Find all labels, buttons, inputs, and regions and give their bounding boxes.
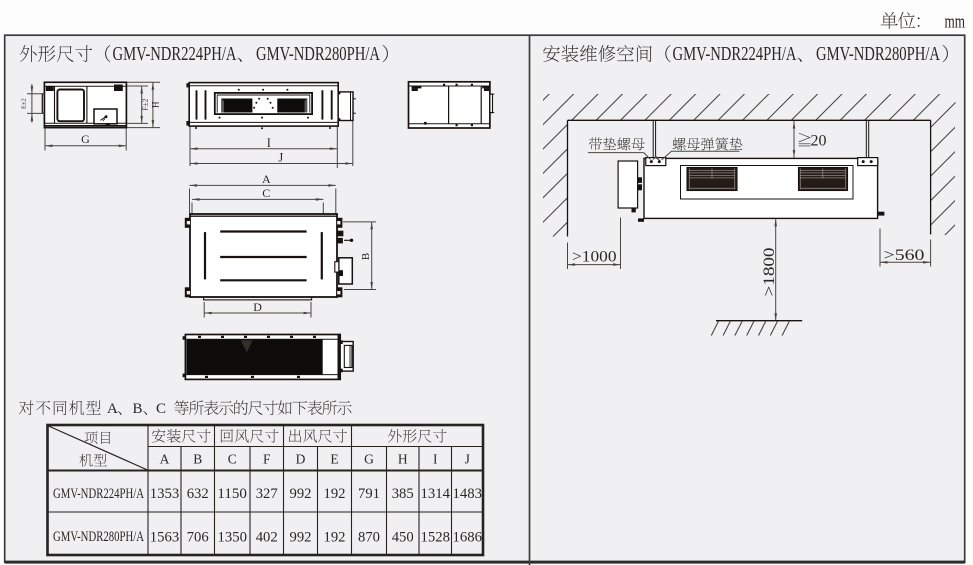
svg-text:B: B xyxy=(193,451,202,466)
svg-text:1350: 1350 xyxy=(217,530,247,546)
svg-text:>1000: >1000 xyxy=(572,249,617,266)
svg-text:H: H xyxy=(150,101,160,108)
svg-text:I: I xyxy=(267,136,271,150)
svg-text:992: 992 xyxy=(290,530,312,546)
svg-text:1563: 1563 xyxy=(150,530,180,546)
svg-text:A: A xyxy=(262,172,271,186)
svg-text:402: 402 xyxy=(256,530,278,546)
svg-text:1353: 1353 xyxy=(150,486,180,502)
svg-text:1483: 1483 xyxy=(452,486,482,502)
svg-text:GMV-NDR280PH/A: GMV-NDR280PH/A xyxy=(53,529,144,545)
svg-text:GMV-NDR224PH/A: GMV-NDR224PH/A xyxy=(113,44,237,65)
svg-text:C: C xyxy=(262,186,270,200)
svg-text:1314: 1314 xyxy=(420,486,450,502)
svg-text:192: 192 xyxy=(324,486,346,502)
svg-text:F±2: F±2 xyxy=(141,98,150,110)
svg-text:B: B xyxy=(133,401,143,417)
svg-text:I: I xyxy=(433,451,438,466)
svg-text:A: A xyxy=(160,451,170,466)
svg-text:GMV-NDR224PH/A: GMV-NDR224PH/A xyxy=(53,486,144,502)
svg-text:GMV-NDR280PH/A: GMV-NDR280PH/A xyxy=(816,44,940,65)
svg-text:D: D xyxy=(296,451,306,466)
svg-text:H: H xyxy=(398,451,408,466)
svg-text:B: B xyxy=(360,253,372,260)
svg-text:632: 632 xyxy=(187,486,209,502)
svg-text:F: F xyxy=(263,451,271,466)
svg-text:1686: 1686 xyxy=(452,530,482,546)
svg-text:992: 992 xyxy=(290,486,312,502)
svg-text:192: 192 xyxy=(324,530,346,546)
svg-text:706: 706 xyxy=(187,530,209,546)
svg-text:385: 385 xyxy=(392,486,414,502)
svg-text:>560: >560 xyxy=(884,247,925,264)
svg-text:C: C xyxy=(228,451,237,466)
svg-text:G: G xyxy=(81,132,90,146)
svg-text:>1800: >1800 xyxy=(761,247,778,296)
svg-text:791: 791 xyxy=(358,486,380,502)
svg-text:C: C xyxy=(156,401,166,417)
svg-text:A: A xyxy=(107,401,118,417)
svg-text:J: J xyxy=(465,451,470,466)
svg-text:327: 327 xyxy=(256,486,278,502)
svg-text:GMV-NDR280PH/A: GMV-NDR280PH/A xyxy=(256,44,380,65)
svg-text:E: E xyxy=(330,451,338,466)
svg-text:G: G xyxy=(364,451,374,466)
svg-text:mm: mm xyxy=(945,11,966,32)
svg-text:E±2: E±2 xyxy=(21,98,28,109)
svg-text:1528: 1528 xyxy=(420,530,450,546)
svg-text:D: D xyxy=(253,300,262,314)
svg-text:20: 20 xyxy=(811,133,827,150)
svg-text:870: 870 xyxy=(358,530,380,546)
svg-text:J: J xyxy=(278,150,283,164)
svg-text:450: 450 xyxy=(392,530,414,546)
svg-text:1150: 1150 xyxy=(217,486,247,502)
svg-text:GMV-NDR224PH/A: GMV-NDR224PH/A xyxy=(673,44,797,65)
